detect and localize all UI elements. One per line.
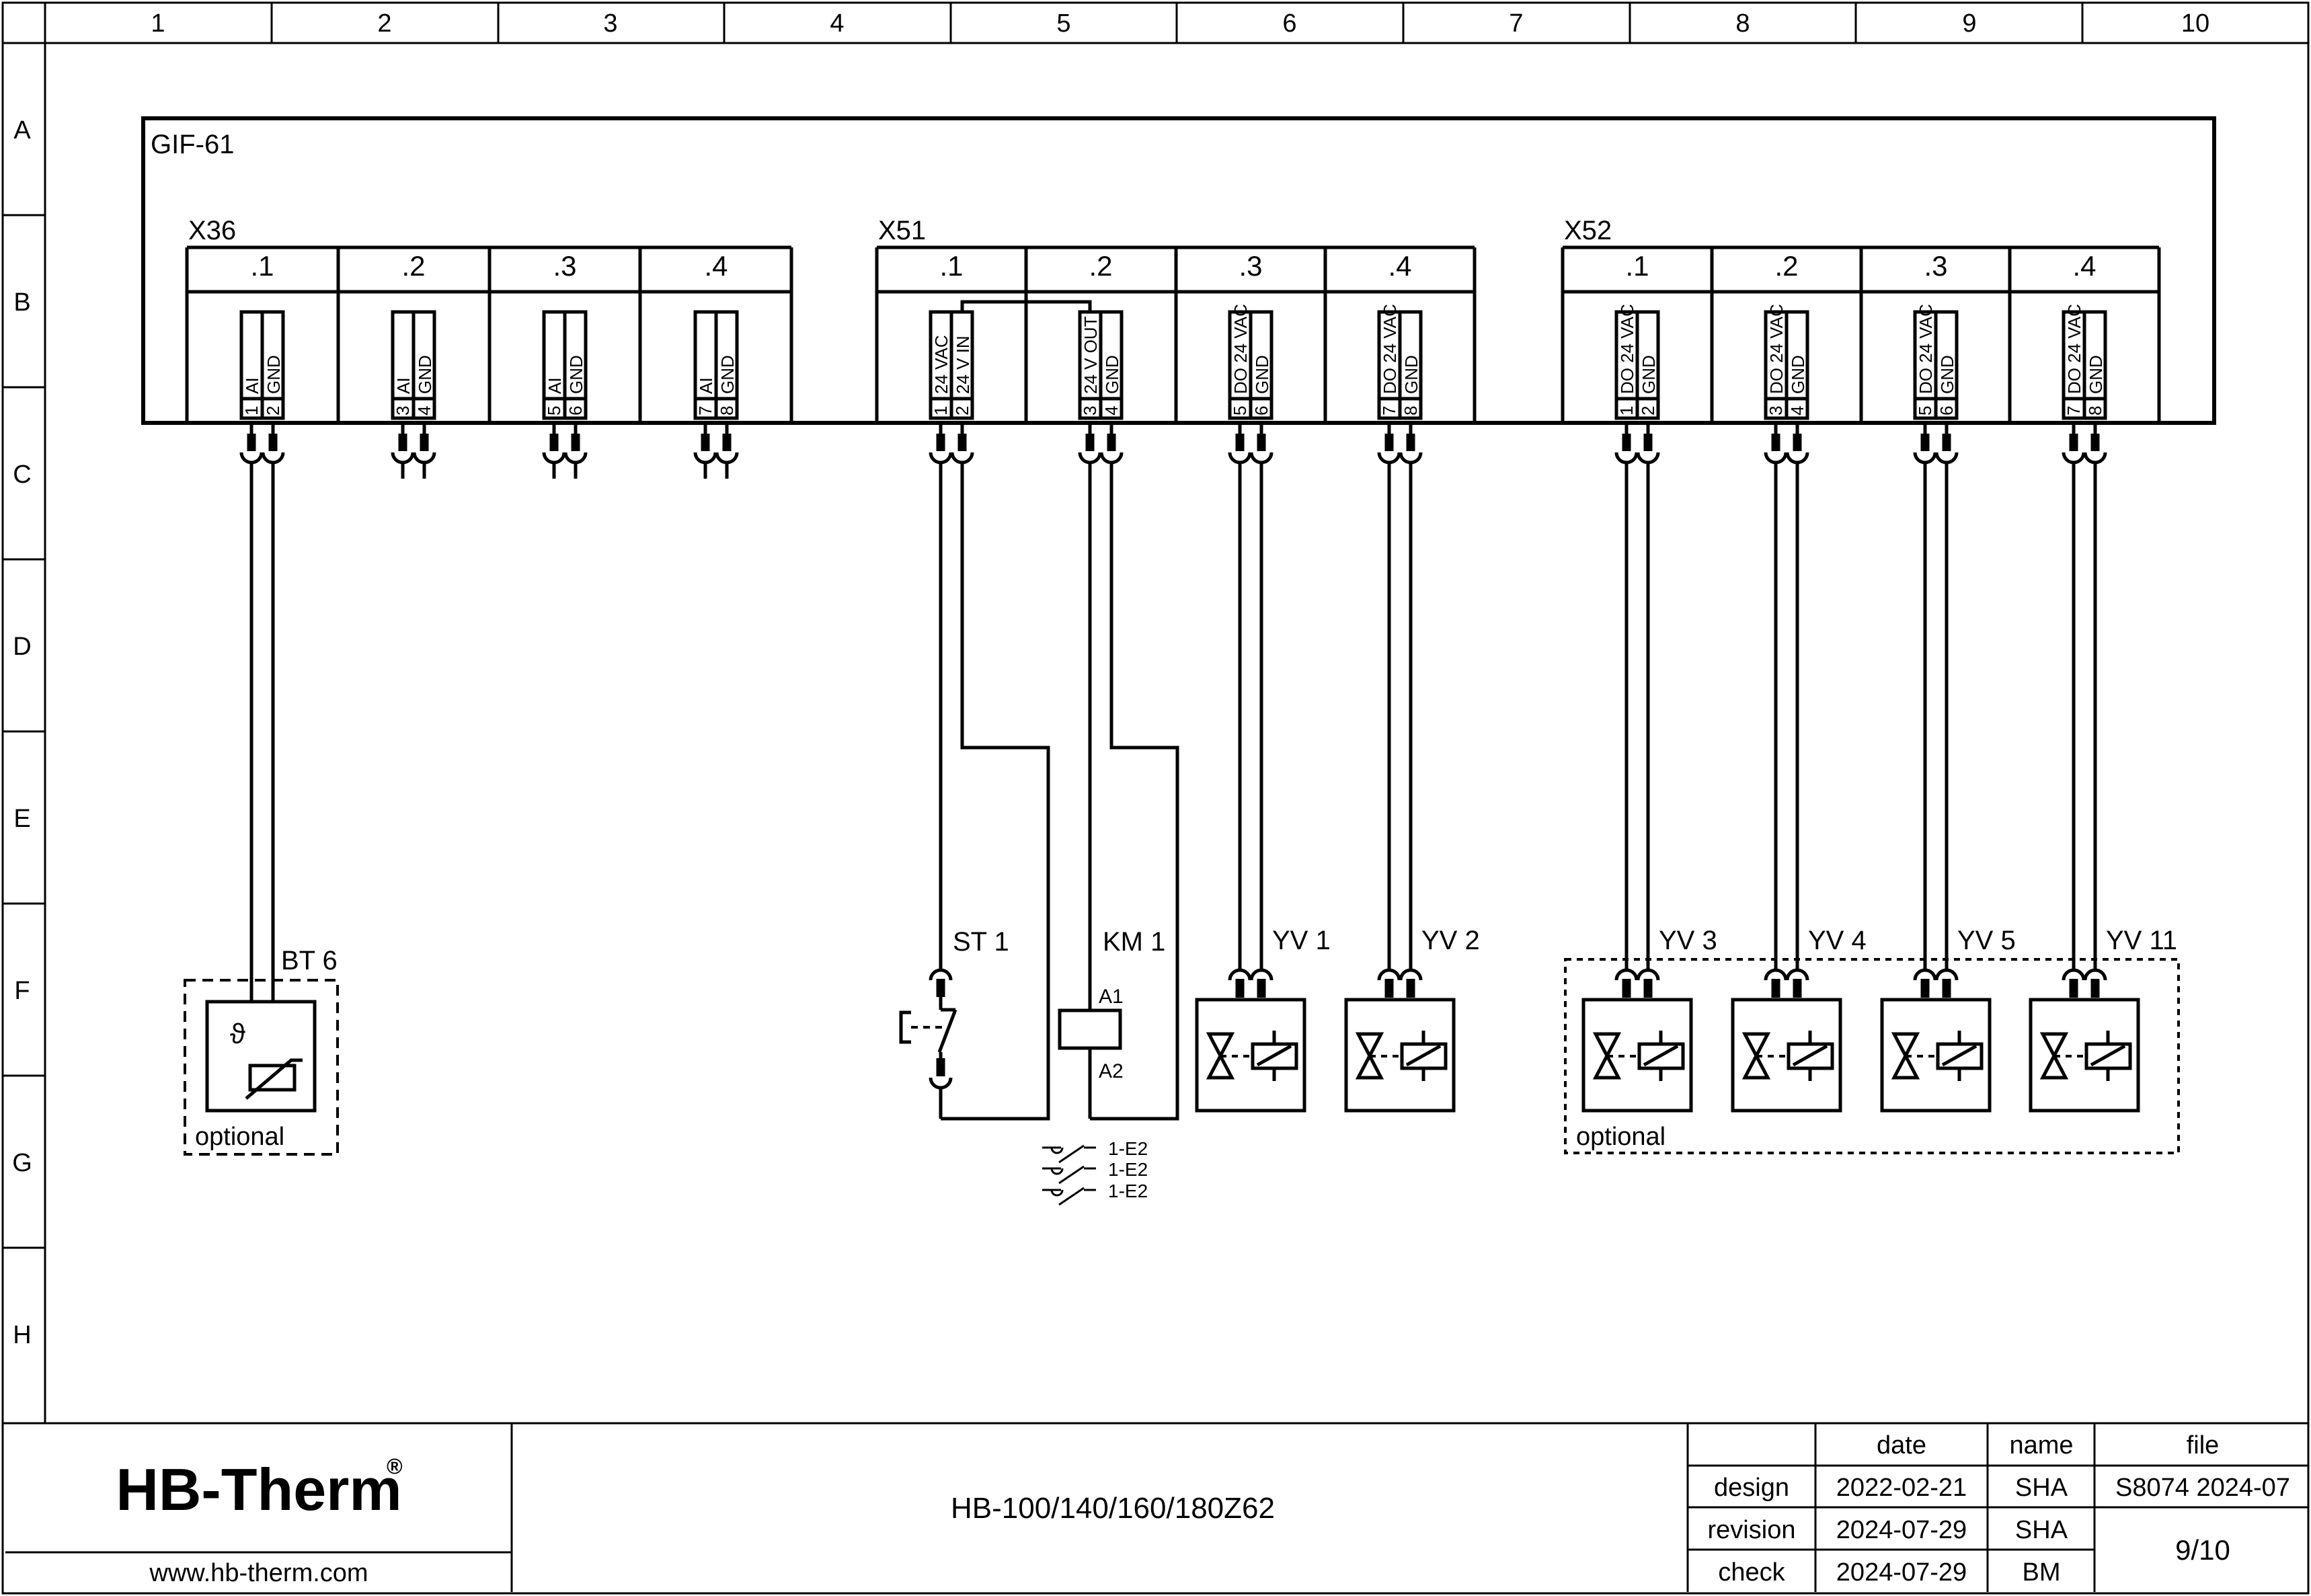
cell-header: .1 <box>1625 250 1649 282</box>
pin-number: 8 <box>717 406 737 415</box>
pin-number: 6 <box>565 406 586 415</box>
x51-cell-1: .1 24 VAC 24 V IN 1 2 <box>931 250 973 418</box>
wire-to-yv2 <box>1389 463 1411 969</box>
yv3-label: YV 3 <box>1659 926 1717 955</box>
check-name: BM <box>2023 1558 2061 1587</box>
contact-ref-label: 1-E2 <box>1108 1138 1148 1159</box>
wire-to-yv4 <box>1776 463 1797 969</box>
km1-a2-label: A2 <box>1099 1060 1124 1082</box>
pin-label: GND <box>1788 355 1808 394</box>
wire-st1-loop <box>941 463 1048 1119</box>
grid-row-label: F <box>14 977 30 1005</box>
solenoid-icon <box>1407 1031 1440 1081</box>
x52-label: X52 <box>1564 216 1612 245</box>
pin-number: 7 <box>2064 406 2084 415</box>
optional-valve-group: optional YV 3 YV 4 YV 5 YV 11 <box>1565 926 2179 1153</box>
design-date: 2022-02-21 <box>1836 1474 1967 1502</box>
terminal-block-x51: X51 .1 24 VAC 24 V IN 1 2 .2 24 V OUT GN… <box>877 216 1475 423</box>
title-block: HB-Therm ® www.hb-therm.com HB-100/140/1… <box>5 1423 2308 1592</box>
pin-label: DO 24 VAC <box>1916 304 1936 394</box>
cell-header: .4 <box>2072 250 2096 282</box>
solenoid-icon <box>1644 1031 1678 1081</box>
pin-number: 4 <box>1101 406 1122 415</box>
component-yv4: YV 4 <box>1733 926 1867 1111</box>
contact-ref-label: 1-E2 <box>1108 1159 1148 1180</box>
contact-ref-2: 1-E2 <box>1042 1159 1148 1183</box>
pin-label: GND <box>1639 355 1659 394</box>
pin-number: 2 <box>263 406 283 415</box>
component-yv3: YV 3 <box>1583 926 1717 1111</box>
column-ticks <box>272 3 2082 43</box>
sheet-border <box>3 3 2308 1593</box>
pin-label: GND <box>2086 355 2106 394</box>
grid-col-label: 8 <box>1735 9 1750 38</box>
schematic-sheet: 1 2 3 4 5 6 7 8 9 10 A B C D E F G H GIF… <box>0 0 2311 1596</box>
pin-label: AI <box>545 377 565 394</box>
pin-number: 1 <box>931 406 951 415</box>
grid-row-label: A <box>13 116 31 145</box>
grid-row-labels: A B C D E F G H <box>12 116 32 1349</box>
km1-coil <box>1060 1010 1120 1048</box>
x51-label: X51 <box>878 216 926 245</box>
cell-header: .3 <box>553 250 576 282</box>
cell-header: .4 <box>704 250 728 282</box>
pin-label: DO 24 VAC <box>1617 304 1637 394</box>
x51-cell-3: .3 DO 24 VAC GND 5 6 <box>1230 250 1272 418</box>
gif-61-box: GIF-61 <box>143 118 2214 423</box>
terminal-block-x52: X52 .1 DO 24 VAC GND 1 2 .2 DO 24 VAC GN… <box>1563 216 2159 423</box>
st1-actuator-icon <box>901 1012 945 1042</box>
sheet-frame <box>3 3 2308 1593</box>
gif-61-outline <box>143 118 2214 423</box>
x51-cell-2: .2 24 V OUT GND 3 4 <box>1080 250 1122 418</box>
wire-km1-loop <box>1090 463 1177 1119</box>
x36-cell-3: .3 AI GND 5 6 <box>544 250 586 418</box>
pin-number: 4 <box>1787 406 1807 415</box>
pin-label: 24 V IN <box>953 335 973 394</box>
row-ticks <box>3 215 45 1248</box>
km1-label: KM 1 <box>1103 927 1165 957</box>
pin-label: GND <box>1102 355 1122 394</box>
pin-label: GND <box>1252 355 1272 394</box>
grid-row-label: E <box>13 805 30 833</box>
contact-ref-label: 1-E2 <box>1108 1181 1148 1201</box>
contact-ref-3: 1-E2 <box>1042 1181 1148 1205</box>
grid-row-label: C <box>13 461 31 489</box>
revision-date: 2024-07-29 <box>1836 1516 1967 1544</box>
file-value: S8074 2024-07 <box>2115 1474 2290 1502</box>
yv4-label: YV 4 <box>1808 926 1867 955</box>
grid-row-label: G <box>12 1149 32 1177</box>
pin-label: GND <box>717 355 738 394</box>
row-label-check: check <box>1718 1558 1785 1587</box>
grid-col-label: 10 <box>2181 9 2209 38</box>
bt6-optional-label: optional <box>195 1123 284 1151</box>
pin-label: 24 V OUT <box>1081 316 1101 394</box>
cell-header: .1 <box>939 250 963 282</box>
grid-col-label: 9 <box>1962 9 1976 38</box>
pin-number: 2 <box>1638 406 1658 415</box>
wire-to-yv5 <box>1925 463 1947 969</box>
wire-to-yv1 <box>1240 463 1261 969</box>
component-yv11: YV 11 <box>2031 926 2177 1111</box>
theta-symbol: ϑ <box>230 1018 245 1049</box>
pin-label: GND <box>1937 355 1957 394</box>
component-yv2: YV 2 <box>1346 926 1480 1111</box>
cell-header: .2 <box>1774 250 1798 282</box>
wires <box>251 463 2095 1119</box>
page-number: 9/10 <box>2175 1534 2230 1566</box>
solenoid-icon <box>2091 1031 2125 1081</box>
grid-col-label: 4 <box>830 9 844 38</box>
component-st1: ST 1 <box>901 927 1009 1088</box>
design-name: SHA <box>2015 1474 2068 1502</box>
x52-cell-1: .1 DO 24 VAC GND 1 2 <box>1616 250 1659 418</box>
pin-label: GND <box>566 355 586 394</box>
pin-number: 6 <box>1251 406 1271 415</box>
pin-number: 3 <box>393 406 413 415</box>
cell-header: .1 <box>250 250 274 282</box>
km1-contact-references: 1-E2 1-E2 1-E2 <box>1042 1138 1148 1205</box>
component-yv1: YV 1 <box>1197 926 1331 1111</box>
solenoid-icon <box>1793 1031 1827 1081</box>
company-website: www.hb-therm.com <box>149 1559 368 1587</box>
pin-label: AI <box>696 377 716 394</box>
x36-cell-1: .1 AI GND 1 2 <box>241 250 284 418</box>
pin-label: DO 24 VAC <box>1230 304 1251 394</box>
check-date: 2024-07-29 <box>1836 1558 1967 1587</box>
x36-cell-4: .4 AI GND 7 8 <box>695 250 738 418</box>
bt6-label: BT 6 <box>281 946 338 975</box>
drawing-title: HB-100/140/160/180Z62 <box>951 1492 1275 1525</box>
component-km1: KM 1 A1 A2 <box>1060 927 1165 1082</box>
revision-name: SHA <box>2015 1516 2068 1544</box>
grid-row-label: H <box>13 1321 31 1349</box>
pin-number: 5 <box>1915 406 1935 415</box>
thermistor-icon <box>246 1060 303 1099</box>
pin-number: 8 <box>2085 406 2105 415</box>
component-plug-connectors <box>1230 970 2105 998</box>
pin-label: 24 VAC <box>931 335 951 394</box>
cell-header: .3 <box>1924 250 1947 282</box>
km1-a1-label: A1 <box>1099 986 1124 1008</box>
grid-col-label: 3 <box>603 9 617 38</box>
grid-col-label: 1 <box>151 9 165 38</box>
grid-column-labels: 1 2 3 4 5 6 7 8 9 10 <box>151 9 2209 38</box>
row-label-revision: revision <box>1708 1516 1796 1544</box>
pin-number: 5 <box>544 406 564 415</box>
col-header-name: name <box>2009 1431 2073 1460</box>
pin-number: 2 <box>952 406 972 415</box>
pin-label: AI <box>393 377 414 394</box>
pin-label: AI <box>242 377 262 394</box>
yv11-label: YV 11 <box>2106 926 2177 955</box>
pin-number: 3 <box>1080 406 1100 415</box>
component-bt6: BT 6 ϑ optional <box>185 946 338 1154</box>
grid-col-label: 2 <box>377 9 391 38</box>
wire-to-yv11 <box>2074 463 2095 969</box>
pin-number: 1 <box>241 406 262 415</box>
yv5-label: YV 5 <box>1957 926 2016 955</box>
yv2-label: YV 2 <box>1421 926 1480 955</box>
pin-label: GND <box>1401 355 1421 394</box>
yv1-label: YV 1 <box>1272 926 1331 955</box>
company-logo: HB-Therm <box>116 1456 401 1523</box>
terminal-block-x36: X36 .1 AI GND 1 2 .2 AI GND 3 4 .3 AI GN… <box>187 216 791 423</box>
cell-header: .2 <box>401 250 425 282</box>
grid-row-label: B <box>13 288 30 317</box>
x36-outline <box>187 247 791 423</box>
cell-header: .4 <box>1388 250 1411 282</box>
grid-col-label: 5 <box>1056 9 1070 38</box>
row-label-design: design <box>1714 1474 1789 1502</box>
pin-number: 1 <box>1616 406 1637 415</box>
pin-number: 6 <box>1936 406 1957 415</box>
x51-cell-4: .4 DO 24 VAC GND 7 8 <box>1379 250 1421 418</box>
pin-label: GND <box>264 355 284 394</box>
cell-header: .2 <box>1089 250 1112 282</box>
solenoid-icon <box>1257 1031 1291 1081</box>
component-yv5: YV 5 <box>1882 926 2016 1111</box>
x36-cell-2: .2 AI GND 3 4 <box>393 250 435 418</box>
pin-number: 3 <box>1766 406 1786 415</box>
bt6-outline <box>207 1002 315 1111</box>
grid-row-label: D <box>13 633 31 661</box>
x52-cell-3: .3 DO 24 VAC GND 5 6 <box>1915 250 1957 418</box>
cell-header: .3 <box>1239 250 1262 282</box>
pin-label: DO 24 VAC <box>1766 304 1787 394</box>
x52-cell-2: .2 DO 24 VAC GND 3 4 <box>1766 250 1808 418</box>
pin-number: 7 <box>1379 406 1399 415</box>
wire-x36-to-bt6 <box>251 463 273 1002</box>
pin-number: 5 <box>1230 406 1250 415</box>
grid-col-label: 7 <box>1509 9 1523 38</box>
col-header-date: date <box>1877 1431 1926 1460</box>
x52-cell-4: .4 DO 24 VAC GND 7 8 <box>2064 250 2106 418</box>
terminal-plug-connectors <box>241 423 2105 479</box>
gif-61-label: GIF-61 <box>151 130 234 159</box>
stub-wires <box>403 463 727 479</box>
solenoid-icon <box>1943 1031 1976 1081</box>
x36-label: X36 <box>188 216 236 245</box>
wire-to-yv3 <box>1627 463 1648 969</box>
pin-number: 7 <box>695 406 715 415</box>
pin-number: 4 <box>414 406 434 415</box>
col-header-file: file <box>2187 1431 2220 1460</box>
pin-label: DO 24 VAC <box>2064 304 2084 394</box>
st1-label: ST 1 <box>953 927 1009 957</box>
grid-col-label: 6 <box>1282 9 1296 38</box>
registered-trademark-icon: ® <box>387 1454 403 1478</box>
pin-label: GND <box>415 355 435 394</box>
pin-number: 8 <box>1401 406 1421 415</box>
valves-optional-label: optional <box>1576 1123 1666 1151</box>
pin-label: DO 24 VAC <box>1380 304 1400 394</box>
